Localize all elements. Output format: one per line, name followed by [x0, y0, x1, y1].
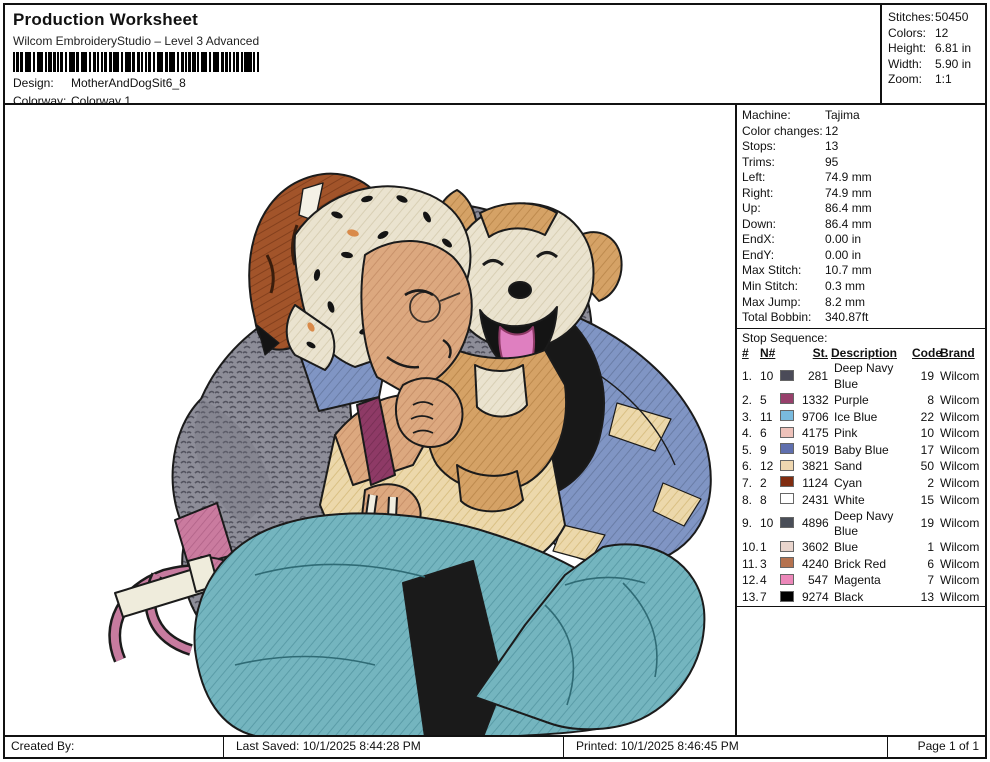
thread-needle: 5 — [759, 393, 780, 409]
thread-row-number: 9. — [742, 516, 759, 532]
stat-row: Stitches: 50450 — [888, 10, 985, 26]
thread-brand: Wilcom — [937, 459, 982, 475]
thread-stitch-code: 9706 — [802, 410, 831, 426]
machine-info-row: Machine: Tajima — [742, 108, 981, 124]
info-panel: Machine: Tajima Color changes: 12 Stops:… — [735, 105, 985, 737]
stat-row: Colors: 12 — [888, 26, 985, 42]
machine-info-row: EndY: 0.00 in — [742, 248, 981, 264]
thread-color-swatch — [780, 443, 794, 454]
software-subtitle: Wilcom EmbroideryStudio – Level 3 Advanc… — [13, 34, 872, 48]
thread-description: Cyan — [831, 476, 912, 492]
jeans-shape — [195, 513, 705, 737]
thread-stitch-code: 1332 — [802, 393, 831, 409]
stop-sequence-title: Stop Sequence: — [737, 329, 985, 346]
machine-info-label: Left: — [742, 170, 825, 186]
stat-value: 50450 — [935, 10, 968, 26]
stat-value: 6.81 in — [935, 41, 971, 57]
thread-row-number: 1. — [742, 369, 759, 385]
thread-color-swatch — [780, 557, 794, 568]
thread-row-number: 2. — [742, 393, 759, 409]
thread-row: 10. 1 3602 Blue 1 Wilcom — [737, 540, 985, 557]
thread-brand: Wilcom — [937, 557, 982, 573]
machine-info-row: Total Bobbin: 340.87ft — [742, 310, 981, 326]
thread-brand: Wilcom — [937, 476, 982, 492]
thread-stitch-code: 4175 — [802, 426, 831, 442]
thread-stitch-code: 2431 — [802, 493, 831, 509]
col-header-code: Code — [912, 346, 937, 362]
thread-needle: 12 — [759, 459, 780, 475]
thread-description: Magenta — [831, 573, 912, 589]
thread-needle: 10 — [759, 516, 780, 532]
design-label: Design: — [13, 76, 71, 90]
machine-info-value: 0.00 in — [825, 248, 861, 264]
thread-brand: Wilcom — [937, 426, 982, 442]
page-indicator: Page 1 of 1 — [887, 737, 985, 757]
thread-code: 7 — [912, 573, 937, 589]
machine-info-value: 0.00 in — [825, 232, 861, 248]
thread-stitch-code: 9274 — [802, 590, 831, 606]
thread-row: 2. 5 1332 Purple 8 Wilcom — [737, 392, 985, 409]
machine-info-row: Down: 86.4 mm — [742, 217, 981, 233]
stat-value: 12 — [935, 26, 948, 42]
thread-color-swatch — [780, 517, 794, 528]
machine-info-label: Trims: — [742, 155, 825, 171]
machine-info-value: 10.7 mm — [825, 263, 872, 279]
thread-needle: 2 — [759, 476, 780, 492]
thread-row: 11. 3 4240 Brick Red 6 Wilcom — [737, 556, 985, 573]
thread-brand: Wilcom — [937, 493, 982, 509]
machine-info-row: Max Stitch: 10.7 mm — [742, 263, 981, 279]
machine-info-label: Down: — [742, 217, 825, 233]
thread-needle: 10 — [759, 369, 780, 385]
created-by: Created By: — [5, 737, 223, 757]
thread-row-number: 11. — [742, 557, 759, 573]
thread-color-swatch — [780, 460, 794, 471]
machine-info-value: 86.4 mm — [825, 201, 872, 217]
stop-sequence-header: # N# St. Description Code Brand — [737, 346, 985, 362]
thread-row-number: 3. — [742, 410, 759, 426]
design-preview-image — [5, 105, 735, 737]
thread-code: 15 — [912, 493, 937, 509]
thread-brand: Wilcom — [937, 590, 982, 606]
thread-needle: 1 — [759, 540, 780, 556]
thread-row: 8. 8 2431 White 15 Wilcom — [737, 492, 985, 509]
stat-label: Height: — [888, 41, 935, 57]
thread-row: 6. 12 3821 Sand 50 Wilcom — [737, 459, 985, 476]
thread-description: Pink — [831, 426, 912, 442]
thread-needle: 11 — [759, 410, 780, 426]
stat-label: Width: — [888, 57, 935, 73]
thread-needle: 6 — [759, 426, 780, 442]
embroidery-artwork — [115, 174, 711, 737]
machine-info-row: Left: 74.9 mm — [742, 170, 981, 186]
thread-color-swatch — [780, 476, 794, 487]
thread-color-swatch — [780, 493, 794, 504]
thread-code: 6 — [912, 557, 937, 573]
thread-code: 19 — [912, 516, 937, 532]
thread-row-number: 5. — [742, 443, 759, 459]
stop-sequence-section: Stop Sequence: # N# St. Description Code… — [737, 328, 985, 608]
stat-label: Stitches: — [888, 10, 935, 26]
thread-brand: Wilcom — [937, 410, 982, 426]
thread-description: White — [831, 493, 912, 509]
thread-stitch-code: 4240 — [802, 557, 831, 573]
thread-code: 17 — [912, 443, 937, 459]
stat-label: Colors: — [888, 26, 935, 42]
thread-stitch-code: 5019 — [802, 443, 831, 459]
design-name-row: Design: MotherAndDogSit6_8 — [13, 76, 872, 90]
machine-info-list: Machine: Tajima Color changes: 12 Stops:… — [737, 105, 985, 328]
thread-description: Black — [831, 590, 912, 606]
thread-code: 1 — [912, 540, 937, 556]
thread-row-number: 4. — [742, 426, 759, 442]
thread-color-swatch — [780, 393, 794, 404]
machine-info-value: 74.9 mm — [825, 186, 872, 202]
machine-info-value: 12 — [825, 124, 838, 140]
machine-info-value: 86.4 mm — [825, 217, 872, 233]
machine-info-label: Color changes: — [742, 124, 825, 140]
thread-stitch-code: 1124 — [802, 476, 831, 492]
thread-needle: 3 — [759, 557, 780, 573]
thread-code: 10 — [912, 426, 937, 442]
thread-description: Ice Blue — [831, 410, 912, 426]
thread-row: 9. 10 4896 Deep Navy Blue 19 Wilcom — [737, 509, 985, 540]
stat-value: 5.90 in — [935, 57, 971, 73]
main-band: Machine: Tajima Color changes: 12 Stops:… — [5, 105, 985, 737]
machine-info-label: Machine: — [742, 108, 825, 124]
thread-description: Deep Navy Blue — [831, 509, 912, 540]
thread-row: 7. 2 1124 Cyan 2 Wilcom — [737, 475, 985, 492]
machine-info-label: Right: — [742, 186, 825, 202]
thread-description: Sand — [831, 459, 912, 475]
thread-stitch-code: 3602 — [802, 540, 831, 556]
machine-info-label: Min Stitch: — [742, 279, 825, 295]
col-header-num: # — [742, 346, 759, 362]
printed-timestamp: Printed: 10/1/2025 8:46:45 PM — [563, 737, 887, 757]
machine-info-value: 13 — [825, 139, 838, 155]
thread-brand: Wilcom — [937, 516, 982, 532]
thread-stitch-code: 3821 — [802, 459, 831, 475]
thread-color-swatch — [780, 541, 794, 552]
machine-info-row: Min Stitch: 0.3 mm — [742, 279, 981, 295]
thread-color-swatch — [780, 591, 794, 602]
machine-info-label: Total Bobbin: — [742, 310, 825, 326]
header-band: Production Worksheet Wilcom EmbroiderySt… — [5, 5, 985, 105]
thread-row-number: 10. — [742, 540, 759, 556]
thread-code: 19 — [912, 369, 937, 385]
thread-brand: Wilcom — [937, 369, 982, 385]
thread-row-number: 12. — [742, 573, 759, 589]
machine-info-label: Max Stitch: — [742, 263, 825, 279]
machine-info-row: Stops: 13 — [742, 139, 981, 155]
thread-stitch-code: 547 — [802, 573, 831, 589]
thread-code: 50 — [912, 459, 937, 475]
thread-description: Baby Blue — [831, 443, 912, 459]
machine-info-value: 74.9 mm — [825, 170, 872, 186]
thread-row: 12. 4 547 Magenta 7 Wilcom — [737, 573, 985, 590]
thread-needle: 9 — [759, 443, 780, 459]
thread-code: 22 — [912, 410, 937, 426]
machine-info-row: Max Jump: 8.2 mm — [742, 295, 981, 311]
machine-info-label: Max Jump: — [742, 295, 825, 311]
machine-info-row: EndX: 0.00 in — [742, 232, 981, 248]
design-stats: Stitches: 50450 Colors: 12 Height: 6.81 … — [880, 5, 985, 103]
thread-color-swatch — [780, 574, 794, 585]
thread-needle: 8 — [759, 493, 780, 509]
thread-stitch-code: 281 — [802, 369, 831, 385]
thread-row-number: 13. — [742, 590, 759, 606]
thread-needle: 7 — [759, 590, 780, 606]
machine-info-row: Trims: 95 — [742, 155, 981, 171]
col-header-brand: Brand — [937, 346, 982, 362]
thread-code: 13 — [912, 590, 937, 606]
stat-row: Height: 6.81 in — [888, 41, 985, 57]
col-header-st: St. — [802, 346, 831, 362]
thread-description: Brick Red — [831, 557, 912, 573]
footer-band: Created By: Last Saved: 10/1/2025 8:44:2… — [5, 735, 985, 757]
thread-stitch-code: 4896 — [802, 516, 831, 532]
thread-row-number: 6. — [742, 459, 759, 475]
stat-row: Width: 5.90 in — [888, 57, 985, 73]
thread-row: 5. 9 5019 Baby Blue 17 Wilcom — [737, 442, 985, 459]
stat-row: Zoom: 1:1 — [888, 72, 985, 88]
thread-brand: Wilcom — [937, 443, 982, 459]
thread-code: 2 — [912, 476, 937, 492]
machine-info-label: EndX: — [742, 232, 825, 248]
machine-info-value: 8.2 mm — [825, 295, 865, 311]
page-frame: Production Worksheet Wilcom EmbroiderySt… — [3, 3, 987, 759]
thread-color-swatch — [780, 370, 794, 381]
col-header-desc: Description — [831, 346, 912, 362]
machine-info-row: Right: 74.9 mm — [742, 186, 981, 202]
thread-needle: 4 — [759, 573, 780, 589]
machine-info-label: Up: — [742, 201, 825, 217]
machine-info-value: Tajima — [825, 108, 860, 124]
thread-row-number: 8. — [742, 493, 759, 509]
thread-brand: Wilcom — [937, 393, 982, 409]
design-preview — [5, 105, 735, 737]
machine-info-label: Stops: — [742, 139, 825, 155]
thread-description: Purple — [831, 393, 912, 409]
production-worksheet-page: Production Worksheet Wilcom EmbroiderySt… — [0, 0, 990, 762]
thread-row: 1. 10 281 Deep Navy Blue 19 Wilcom — [737, 361, 985, 392]
thread-code: 8 — [912, 393, 937, 409]
design-value: MotherAndDogSit6_8 — [71, 76, 186, 90]
thread-color-swatch — [780, 427, 794, 438]
machine-info-value: 340.87ft — [825, 310, 868, 326]
machine-info-row: Up: 86.4 mm — [742, 201, 981, 217]
col-header-n: N# — [759, 346, 780, 362]
stat-value: 1:1 — [935, 72, 952, 88]
thread-brand: Wilcom — [937, 573, 982, 589]
machine-info-value: 95 — [825, 155, 838, 171]
design-barcode — [13, 52, 259, 72]
stop-sequence-rows: 1. 10 281 Deep Navy Blue 19 Wilcom 2. — [737, 361, 985, 607]
header: Production Worksheet Wilcom EmbroiderySt… — [5, 5, 880, 103]
machine-info-value: 0.3 mm — [825, 279, 865, 295]
stat-label: Zoom: — [888, 72, 935, 88]
thread-row: 4. 6 4175 Pink 10 Wilcom — [737, 426, 985, 443]
page-title: Production Worksheet — [13, 10, 872, 30]
thread-row: 13. 7 9274 Black 13 Wilcom — [737, 590, 985, 607]
thread-description: Blue — [831, 540, 912, 556]
thread-brand: Wilcom — [937, 540, 982, 556]
machine-info-label: EndY: — [742, 248, 825, 264]
last-saved: Last Saved: 10/1/2025 8:44:28 PM — [223, 737, 563, 757]
thread-row: 3. 11 9706 Ice Blue 22 Wilcom — [737, 409, 985, 426]
thread-row-number: 7. — [742, 476, 759, 492]
thread-color-swatch — [780, 410, 794, 421]
machine-info-row: Color changes: 12 — [742, 124, 981, 140]
thread-description: Deep Navy Blue — [831, 361, 912, 392]
